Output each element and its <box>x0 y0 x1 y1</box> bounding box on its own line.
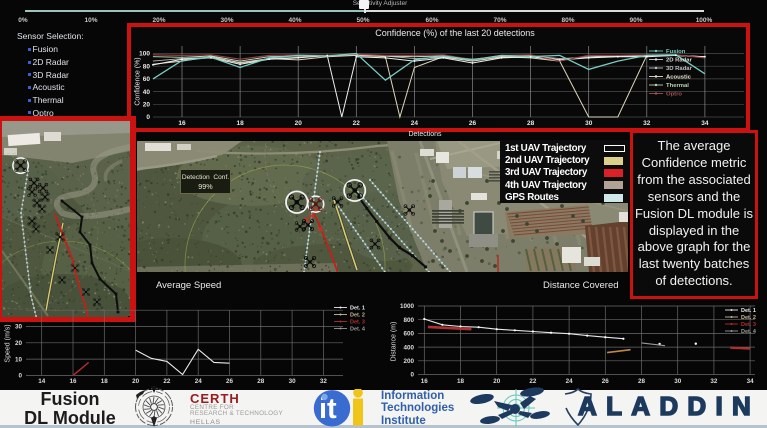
svg-text:34: 34 <box>747 378 755 385</box>
svg-text:800: 800 <box>403 317 414 324</box>
svg-text:600: 600 <box>403 331 414 338</box>
svg-text:100: 100 <box>139 51 150 58</box>
svg-text:32: 32 <box>320 378 328 385</box>
svg-text:28: 28 <box>257 378 265 385</box>
svg-text:24: 24 <box>195 378 203 385</box>
svg-text:60: 60 <box>143 76 151 83</box>
svg-text:22: 22 <box>529 378 537 385</box>
svg-text:Det. 3: Det. 3 <box>741 322 756 328</box>
svg-text:0: 0 <box>146 114 150 121</box>
svg-text:Optro: Optro <box>666 92 682 98</box>
svg-text:3D Radar: 3D Radar <box>666 66 693 72</box>
svg-text:Det. 2: Det. 2 <box>350 313 365 319</box>
svg-text:Thermal: Thermal <box>666 83 689 89</box>
svg-text:20: 20 <box>15 340 23 347</box>
svg-text:Fusion: Fusion <box>666 49 686 55</box>
svg-text:Det. 1: Det. 1 <box>741 308 756 314</box>
svg-text:80: 80 <box>143 63 151 70</box>
svg-text:20: 20 <box>493 378 501 385</box>
svg-text:40: 40 <box>143 89 151 96</box>
svg-text:0: 0 <box>410 372 414 379</box>
svg-text:1000: 1000 <box>400 303 415 310</box>
svg-text:26: 26 <box>602 378 610 385</box>
svg-text:Det. 2: Det. 2 <box>741 315 756 321</box>
svg-text:30: 30 <box>289 378 297 385</box>
svg-text:30: 30 <box>15 324 23 331</box>
svg-text:30: 30 <box>585 120 593 127</box>
svg-text:16: 16 <box>178 120 186 127</box>
svg-text:20: 20 <box>132 378 140 385</box>
svg-text:Det. 4: Det. 4 <box>350 327 366 333</box>
svg-text:16: 16 <box>69 378 77 385</box>
svg-text:2D Radar: 2D Radar <box>666 58 693 64</box>
svg-text:24: 24 <box>566 378 574 385</box>
svg-text:28: 28 <box>527 120 535 127</box>
svg-text:32: 32 <box>710 378 718 385</box>
svg-text:30: 30 <box>674 378 682 385</box>
svg-text:18: 18 <box>236 120 244 127</box>
svg-text:18: 18 <box>101 378 109 385</box>
svg-text:26: 26 <box>226 378 234 385</box>
svg-text:20: 20 <box>143 102 151 109</box>
svg-text:400: 400 <box>403 344 414 351</box>
svg-text:Acoustic: Acoustic <box>666 75 692 81</box>
svg-text:16: 16 <box>421 378 429 385</box>
svg-text:200: 200 <box>403 358 414 365</box>
svg-text:14: 14 <box>38 378 46 385</box>
svg-text:22: 22 <box>353 120 361 127</box>
svg-text:ALADDIN: ALADDIN <box>578 391 758 421</box>
svg-text:Det. 1: Det. 1 <box>350 306 365 312</box>
svg-text:20: 20 <box>295 120 303 127</box>
svg-text:26: 26 <box>469 120 477 127</box>
svg-text:0: 0 <box>18 373 22 380</box>
svg-text:22: 22 <box>163 378 171 385</box>
svg-text:18: 18 <box>457 378 465 385</box>
svg-text:32: 32 <box>643 120 651 127</box>
svg-text:28: 28 <box>638 378 646 385</box>
svg-text:Det. 3: Det. 3 <box>350 320 365 326</box>
svg-text:Det. 4: Det. 4 <box>741 329 757 335</box>
svg-text:24: 24 <box>411 120 419 127</box>
svg-text:10: 10 <box>15 356 23 363</box>
svg-text:34: 34 <box>701 120 709 127</box>
